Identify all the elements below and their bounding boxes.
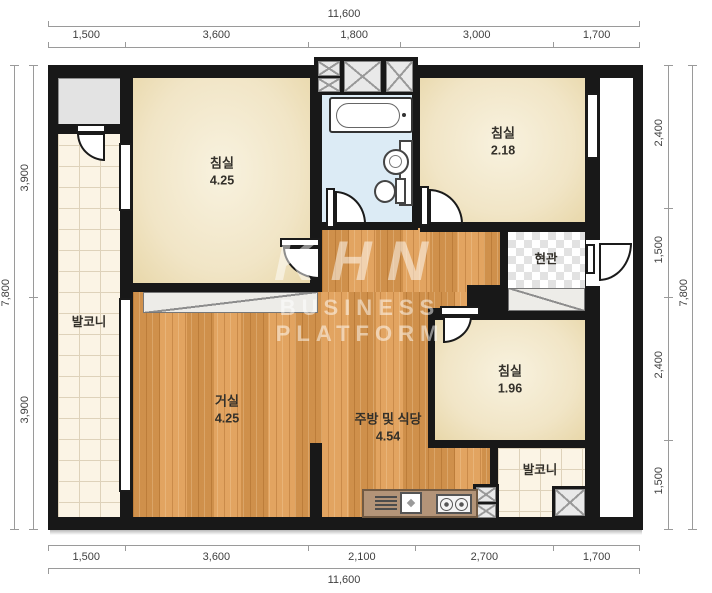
duct-shaft (476, 504, 496, 518)
stove-burner (455, 498, 468, 511)
door-leaf (326, 188, 335, 228)
floor-plan-page: 11,600 1,500 3,600 1,800 3,000 1,700 1,5… (0, 0, 712, 593)
dim-label: 2,400 (653, 351, 665, 379)
dim-label: 1,500 (653, 236, 665, 264)
window (119, 143, 132, 211)
dimension-bottom-total: 11,600 (48, 568, 640, 587)
duct-shaft (318, 61, 340, 76)
dim-label: 7,800 (0, 279, 12, 307)
dim-label: 1,700 (553, 551, 640, 564)
duct-shaft (386, 61, 413, 92)
dimension-left-total-line (14, 65, 15, 530)
dim-label: 3,900 (19, 164, 31, 192)
dimension-bottom-segments: 1,500 3,600 2,100 2,700 1,700 (48, 545, 640, 564)
stove (436, 494, 472, 514)
dimension-top-total: 11,600 (48, 8, 640, 27)
toilet-tank (395, 178, 406, 204)
stove-burner (440, 498, 453, 511)
toilet-bowl (374, 180, 396, 203)
room-label-kitchen: 주방 및 식당 4.54 (354, 411, 421, 444)
kitchen-sink-drain (407, 499, 415, 507)
room-label-bedroom-2: 침실 2.18 (491, 125, 515, 158)
room-label-living: 거실 4.25 (215, 393, 239, 426)
dim-label: 3,600 (125, 29, 309, 42)
window (586, 93, 599, 159)
door-leaf (440, 306, 480, 316)
duct-shaft (555, 489, 585, 516)
dimension-right-total-line (692, 65, 693, 530)
bathtub-drain (402, 113, 406, 117)
dim-label: 1,500 (48, 551, 125, 564)
bathtub (329, 97, 413, 133)
door-leaf (280, 238, 320, 247)
wall-segment (133, 283, 322, 292)
bathtub-basin (336, 103, 400, 128)
door-leaf (586, 244, 595, 274)
wardrobe-cabinet (143, 292, 318, 313)
shoe-cabinet (508, 288, 585, 311)
dimension-top-segments: 1,500 3,600 1,800 3,000 1,700 (48, 29, 640, 48)
dim-label: 7,800 (678, 279, 690, 307)
wall-segment (48, 65, 58, 530)
dimension-line (48, 21, 640, 27)
duct-shaft (344, 61, 381, 92)
dim-label: 1,500 (48, 29, 125, 42)
plan-shadow (50, 530, 642, 535)
duct-shaft (476, 487, 496, 502)
wall-segment (633, 65, 643, 530)
dim-label: 1,500 (653, 467, 665, 495)
wall-segment (412, 78, 420, 228)
room-label-bedroom-3: 침실 1.96 (498, 363, 522, 396)
door-leaf (420, 186, 429, 226)
vent-grill (375, 496, 397, 510)
dim-label: 2,100 (308, 551, 415, 564)
dim-label: 3,900 (19, 396, 31, 424)
dim-label: 3,600 (125, 551, 309, 564)
wall-segment (428, 440, 600, 448)
duct-shaft (318, 78, 340, 92)
room-label-bedroom-1: 침실 4.25 (210, 155, 234, 188)
room-utility-closet (58, 78, 126, 126)
wall-segment (310, 443, 322, 517)
room-label-balcony-left: 발코니 (72, 314, 107, 330)
window (119, 298, 132, 492)
dim-label: 1,700 (553, 29, 640, 42)
exterior-corridor (600, 78, 633, 517)
dim-label: 3,000 (400, 29, 553, 42)
dim-label: 1,800 (308, 29, 400, 42)
wall-segment (428, 308, 435, 448)
floor-hall-wood (322, 228, 508, 292)
sink-basin (383, 149, 409, 175)
room-living (133, 292, 428, 517)
room-label-balcony-right: 발코니 (523, 462, 558, 478)
room-label-entrance: 현관 (534, 251, 557, 267)
dim-label: 2,400 (653, 119, 665, 147)
dim-label: 2,700 (415, 551, 553, 564)
dim-label: 11,600 (48, 8, 640, 21)
door-leaf (76, 124, 106, 133)
kitchen-sink (400, 492, 422, 514)
dim-label: 11,600 (48, 574, 640, 587)
